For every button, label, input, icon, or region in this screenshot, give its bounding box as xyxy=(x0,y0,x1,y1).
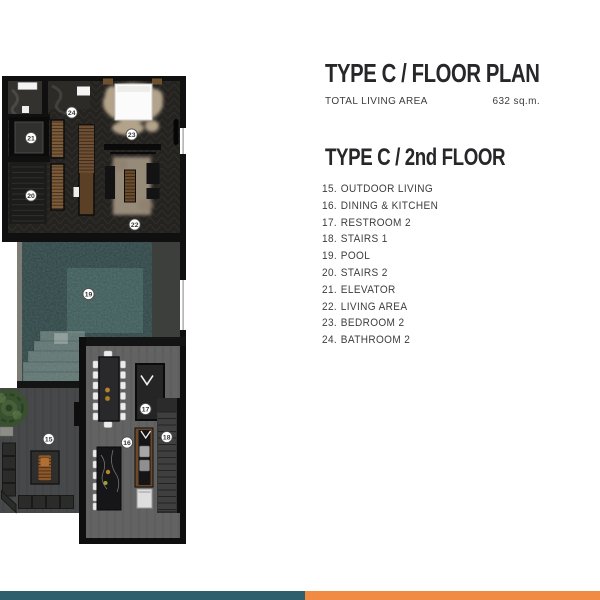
marker-19: 19 xyxy=(83,288,94,299)
legend-number: 21. xyxy=(322,282,337,299)
outer-wall xyxy=(180,242,186,280)
marker-label: 21 xyxy=(27,135,35,142)
table-decor xyxy=(105,396,110,401)
legend-item: 21.ELEVATOR xyxy=(322,282,438,299)
legend-item: 24.BATHROOM 2 xyxy=(322,332,438,349)
marker-16: 16 xyxy=(121,437,132,448)
legend-label: ELEVATOR xyxy=(341,282,396,299)
orange-stripe xyxy=(305,591,600,600)
armchair xyxy=(147,188,160,199)
marker-label: 18 xyxy=(163,434,171,441)
wardrobe xyxy=(51,120,64,210)
door xyxy=(174,119,179,145)
legend-item: 16.DINING & KITCHEN xyxy=(322,198,438,215)
marker-label: 17 xyxy=(142,406,150,413)
teal-stripe xyxy=(0,591,305,600)
fixture xyxy=(77,87,90,96)
kitchen-counter xyxy=(135,428,153,508)
window-frame xyxy=(183,128,184,154)
window-frame xyxy=(183,280,184,330)
interior-wall xyxy=(2,156,50,162)
interior-wall xyxy=(42,76,48,118)
legend-item: 18.STAIRS 1 xyxy=(322,231,438,248)
legend-number: 22. xyxy=(322,299,337,316)
total-living-area-row: TOTAL LIVING AREA 632 sq.m. xyxy=(325,96,540,107)
legend-label: STAIRS 2 xyxy=(341,265,388,282)
pool-bottom-wall xyxy=(17,381,79,388)
legend-number: 17. xyxy=(322,215,337,232)
legend-number: 19. xyxy=(322,248,337,265)
legend-item: 23.BEDROOM 2 xyxy=(322,315,438,332)
marker-label: 15 xyxy=(45,436,53,443)
skylight xyxy=(18,83,37,90)
console-desk-shadow xyxy=(110,152,156,154)
legend-number: 20. xyxy=(322,265,337,282)
legend-label: RESTROOM 2 xyxy=(341,215,411,232)
fixture xyxy=(22,106,29,113)
pool-deck xyxy=(152,242,180,337)
legend-number: 16. xyxy=(322,198,337,215)
legend-label: BEDROOM 2 xyxy=(341,315,405,332)
floor-plan: 15 16 17 18 19 20 21 22 23 24 xyxy=(0,0,600,600)
marker-23: 23 xyxy=(126,129,137,140)
page: 15 16 17 18 19 20 21 22 23 24 TYPE C / F… xyxy=(0,0,600,600)
legend-item: 19.POOL xyxy=(322,248,438,265)
console-desk xyxy=(104,144,161,150)
marker-label: 19 xyxy=(85,291,93,298)
legend-label: DINING & KITCHEN xyxy=(341,198,438,215)
outer-wall xyxy=(79,337,86,544)
armchair xyxy=(147,163,160,184)
section-title: TYPE C / 2nd FLOOR xyxy=(325,146,505,170)
legend-item: 20.STAIRS 2 xyxy=(322,265,438,282)
legend-label: POOL xyxy=(341,248,370,265)
sofa xyxy=(105,166,115,199)
legend-label: STAIRS 1 xyxy=(341,231,388,248)
legend-item: 17.RESTROOM 2 xyxy=(322,215,438,232)
legend-number: 18. xyxy=(322,231,337,248)
outer-wall xyxy=(180,346,186,538)
marker-24: 24 xyxy=(66,107,77,118)
island-decor xyxy=(106,470,110,474)
legend-item: 15.OUTDOOR LIVING xyxy=(322,181,438,198)
outdoor-living xyxy=(0,388,86,513)
marker-17: 17 xyxy=(140,403,151,414)
marker-22: 22 xyxy=(129,219,140,230)
appliance xyxy=(140,446,150,457)
area-label: TOTAL LIVING AREA xyxy=(325,96,428,107)
stairs-1 xyxy=(157,398,180,513)
island-decor xyxy=(104,481,108,485)
marker-label: 16 xyxy=(123,440,131,447)
marker-15: 15 xyxy=(43,433,54,444)
planter xyxy=(0,427,13,436)
kitchen-island xyxy=(93,447,121,510)
interior-wall xyxy=(79,337,186,346)
table-decor xyxy=(105,388,110,393)
marker-label: 22 xyxy=(131,222,139,229)
legend: 15.OUTDOOR LIVING 16.DINING & KITCHEN 17… xyxy=(322,181,438,349)
wall-stub xyxy=(74,402,86,426)
daybed xyxy=(31,451,59,484)
legend-number: 15. xyxy=(322,181,337,198)
outer-wall xyxy=(79,538,186,544)
marker-20: 20 xyxy=(25,190,36,201)
footer-stripes xyxy=(0,591,600,600)
marker-18: 18 xyxy=(161,431,172,442)
fridge-handle xyxy=(139,491,151,493)
legend-label: BATHROOM 2 xyxy=(341,332,410,349)
legend-label: LIVING AREA xyxy=(341,299,408,316)
legend-number: 24. xyxy=(322,332,337,349)
marker-label: 24 xyxy=(68,110,76,117)
area-value: 632 sq.m. xyxy=(492,96,540,107)
marker-label: 20 xyxy=(27,193,35,200)
legend-item: 22.LIVING AREA xyxy=(322,299,438,316)
page-title: TYPE C / FLOOR PLAN xyxy=(325,60,540,86)
appliance xyxy=(140,460,150,471)
upper-floor-block xyxy=(2,76,186,242)
legend-number: 23. xyxy=(322,315,337,332)
outer-wall xyxy=(2,233,186,242)
marker-label: 23 xyxy=(128,132,136,139)
marker-21: 21 xyxy=(25,132,36,143)
legend-label: OUTDOOR LIVING xyxy=(341,181,433,198)
